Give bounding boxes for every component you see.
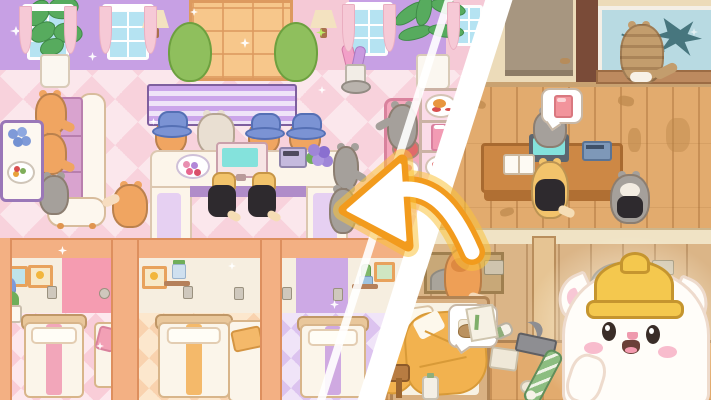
cat-body	[333, 146, 359, 190]
trash-bottle	[422, 376, 439, 400]
sofa-foot	[89, 223, 96, 229]
shelf-pot-plant	[172, 264, 186, 279]
wall-knob	[99, 288, 110, 299]
picture-frame-sunflower	[28, 265, 53, 288]
vest-black	[617, 196, 643, 218]
room-divider	[260, 238, 282, 400]
room-divider	[0, 238, 12, 400]
note-paper-pencil	[465, 304, 498, 342]
blue-bucket-hat-brim	[152, 125, 192, 138]
plate-food	[400, 164, 412, 172]
curtain-left	[342, 4, 355, 52]
yellow-desk-cat[interactable]	[531, 161, 569, 219]
hero-eye-right	[646, 325, 660, 344]
stool-leg	[396, 378, 402, 398]
sunflower	[150, 272, 158, 280]
eye-glint	[649, 328, 654, 334]
macarons	[183, 161, 190, 168]
cat-body	[329, 188, 357, 234]
pillow-orange	[230, 325, 264, 353]
brown-window-cat[interactable]	[620, 24, 664, 84]
old-wall-strip-brown	[576, 0, 598, 82]
cat-patch	[451, 258, 469, 272]
game-scene[interactable]	[0, 0, 711, 400]
curtain-left	[99, 6, 112, 54]
sofa-foot	[57, 223, 64, 229]
floor-stain	[666, 118, 690, 152]
floor-stain	[560, 58, 570, 64]
umbrella-stand	[338, 50, 370, 92]
register-screen	[283, 151, 299, 156]
cat-paws	[630, 72, 652, 82]
gray-vest-cat[interactable]	[610, 174, 650, 224]
light-switch[interactable]	[183, 286, 193, 299]
bed-pillow	[308, 329, 358, 346]
monitor-screen	[222, 148, 258, 167]
hero-cat-builder[interactable]	[550, 250, 711, 400]
light-switch[interactable]	[47, 286, 57, 299]
cash-register[interactable]	[279, 147, 307, 168]
staff-cat-tail	[226, 209, 242, 223]
gray-cat-walking[interactable]	[329, 188, 357, 234]
old-register[interactable]	[582, 141, 612, 161]
hero-helmet-ridge	[620, 252, 650, 274]
sunflower	[36, 271, 44, 279]
hero-cheek-left	[584, 342, 603, 354]
bed-orange[interactable]	[158, 318, 230, 398]
food-plate	[7, 161, 35, 184]
accent-panel-purple	[296, 258, 348, 313]
bush	[274, 22, 318, 82]
leaf	[415, 0, 433, 26]
croissant	[433, 99, 446, 108]
blue-bucket-hat-brim	[286, 127, 326, 140]
curtain-right	[383, 4, 396, 52]
wall-shelf-plant	[164, 268, 190, 288]
side-table[interactable]	[0, 120, 44, 202]
bush	[168, 22, 212, 82]
curtain-right	[144, 6, 157, 54]
light-switch[interactable]	[282, 287, 292, 300]
stand-base	[341, 80, 371, 94]
food-bits	[14, 166, 20, 172]
hammer-handle-cap	[525, 389, 538, 400]
cat-body	[112, 184, 148, 228]
hero-mouth	[622, 340, 640, 354]
hydrangea-blue	[8, 129, 18, 139]
bottle-cap	[427, 373, 434, 378]
eye-glint	[605, 325, 610, 331]
leaf	[397, 24, 433, 43]
blue-hat-customer-cat[interactable]	[155, 118, 187, 154]
window	[100, 4, 156, 62]
hero-helmet-brim	[586, 300, 684, 319]
old-doorway-dark	[505, 0, 573, 76]
old-light-switch[interactable]	[484, 260, 504, 275]
accent-panel-pink	[62, 258, 114, 313]
light-switch[interactable]	[234, 287, 244, 300]
floor-stain	[628, 128, 641, 152]
green-pencil	[474, 315, 479, 330]
curtain-left	[447, 2, 460, 50]
bubble-item-top	[557, 98, 566, 102]
orange-cat-walking[interactable]	[112, 184, 148, 228]
curtain-left	[19, 6, 32, 54]
curtain-right	[64, 6, 77, 54]
lamp-shade	[310, 10, 337, 28]
blue-bucket-hat-brim	[245, 127, 285, 140]
hero-eye-left	[602, 322, 616, 341]
hydrangea-purple	[308, 144, 320, 156]
old-register-band	[586, 145, 604, 149]
hero-tongue	[625, 347, 637, 353]
bed-pink[interactable]	[24, 318, 84, 398]
hero-nose	[627, 332, 638, 340]
light-switch[interactable]	[333, 288, 343, 301]
bed-pillow	[167, 327, 221, 344]
room-divider	[111, 238, 139, 400]
speech-bubble-reception[interactable]	[541, 88, 583, 124]
gray-cat-walking[interactable]	[333, 146, 359, 190]
hero-cheek-right	[658, 346, 677, 358]
plant-pot	[40, 54, 70, 88]
bed-pillow	[31, 327, 77, 344]
bubble-item-pink-bed	[554, 95, 573, 118]
staff-cat-tail	[266, 209, 282, 223]
